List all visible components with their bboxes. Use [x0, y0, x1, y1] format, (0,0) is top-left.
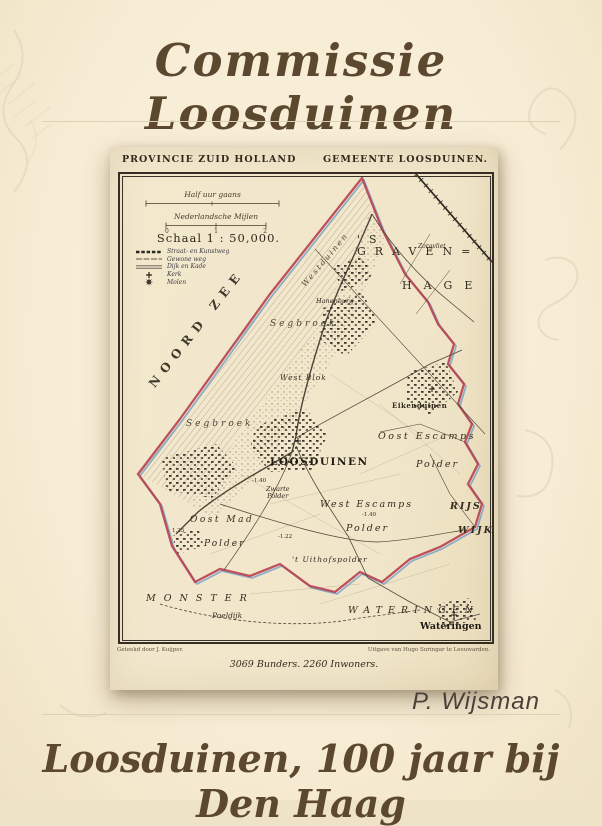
map-label-uithofspolder: 't Uithofspolder	[292, 556, 368, 564]
legend-label: Dijk en Kade	[167, 263, 206, 270]
map-label-elevation: -1.40	[252, 478, 266, 484]
map-header: PROVINCIE ZUID HOLLAND GEMEENTE LOOSDUIN…	[122, 154, 488, 165]
map-label-loosduinen-town: LOOSDUINEN	[270, 457, 369, 469]
map-label-elevation: -1.40	[362, 512, 376, 518]
map-legend: Straat- en Kunstweg Gewone weg Dijk en K…	[136, 248, 229, 286]
map-label-west-blok: West Blok	[280, 374, 327, 382]
map-label-rijs: RIJS	[450, 502, 482, 512]
map-scale-text: Schaal 1 : 50,000.	[156, 231, 281, 245]
map-header-municipality: GEMEENTE LOOSDUINEN.	[323, 154, 488, 165]
legend-label: Straat- en Kunstweg	[167, 248, 229, 255]
legend-label: Molen	[167, 279, 186, 286]
map-label-segbroek-south: Segbroek	[186, 420, 254, 430]
map-label-wateringen-town: Wateringen	[420, 622, 482, 632]
scalebar-label: Nederlandsche Mijlen	[165, 212, 267, 221]
map-label-hanenburg: Hanenburg	[316, 298, 353, 305]
map-label-oost-escamps-polder: Polder	[416, 460, 459, 470]
map-label-oost-mad-polder: Polder	[204, 540, 245, 550]
map-label-oost-mad: Oost Mad	[190, 516, 254, 526]
map-label-poeldijk: Poeldijk	[212, 612, 242, 620]
map-header-province: PROVINCIE ZUID HOLLAND	[122, 154, 296, 165]
author-divider	[42, 714, 560, 715]
map-sheet: PROVINCIE ZUID HOLLAND GEMEENTE LOOSDUIN…	[110, 147, 498, 690]
map-label-oost-escamps: Oost Escamps	[378, 432, 476, 442]
map-label-elevation: -1.22	[278, 534, 292, 540]
legend-label: Kerk	[167, 271, 181, 278]
map-label-wateringen-region: WATERINGEN	[348, 606, 479, 616]
map-credit-publisher: Uitgave van Hugo Suringar te Leeuwarden.	[368, 647, 490, 653]
page-title: Commissie Loosduinen	[0, 34, 602, 140]
map-label-west-escamps-polder: Polder	[346, 524, 389, 534]
windmill-symbol	[136, 278, 162, 286]
scalebar-half-uur: Half uur gaans	[145, 190, 280, 207]
map-frame: Half uur gaans Nederlandsche Mijlen	[118, 172, 494, 644]
map-label-zorgvliet: Zorgvliet	[418, 244, 446, 251]
map-statistics: 3069 Bunders. 2260 Inwoners.	[110, 659, 498, 670]
scalebar-line	[145, 200, 280, 207]
map-label-wijk: WIJK	[458, 526, 494, 536]
map-label-west-escamps: West Escamps	[320, 500, 413, 510]
map-label-eikenduinen: Eikenduinen	[392, 402, 447, 410]
page-subtitle: Loosduinen, 100 jaar bij Den Haag	[0, 736, 602, 826]
map-credit-cartographer: Geteekd door J. Kuijper.	[117, 647, 183, 653]
title-divider	[42, 121, 560, 122]
map-label-monster: MONSTER	[146, 594, 255, 604]
scalebar-label: Half uur gaans	[145, 190, 280, 199]
author-name: P. Wijsman	[412, 688, 540, 716]
legend-item: Molen	[136, 278, 229, 286]
map-label-hage: HAGE	[402, 280, 484, 292]
map-label-segbroek-north: Segbroek	[270, 320, 338, 330]
legend-label: Gewone weg	[167, 256, 206, 263]
map-label-elevation: 1.25	[172, 528, 184, 534]
map-credits: Geteekd door J. Kuijper. Uitgave van Hug…	[117, 647, 490, 653]
map-label-zwarte-polder: Zwarte Polder	[266, 486, 290, 500]
book-cover: Commissie Loosduinen PROVINCIE ZUID HOLL…	[0, 0, 602, 800]
